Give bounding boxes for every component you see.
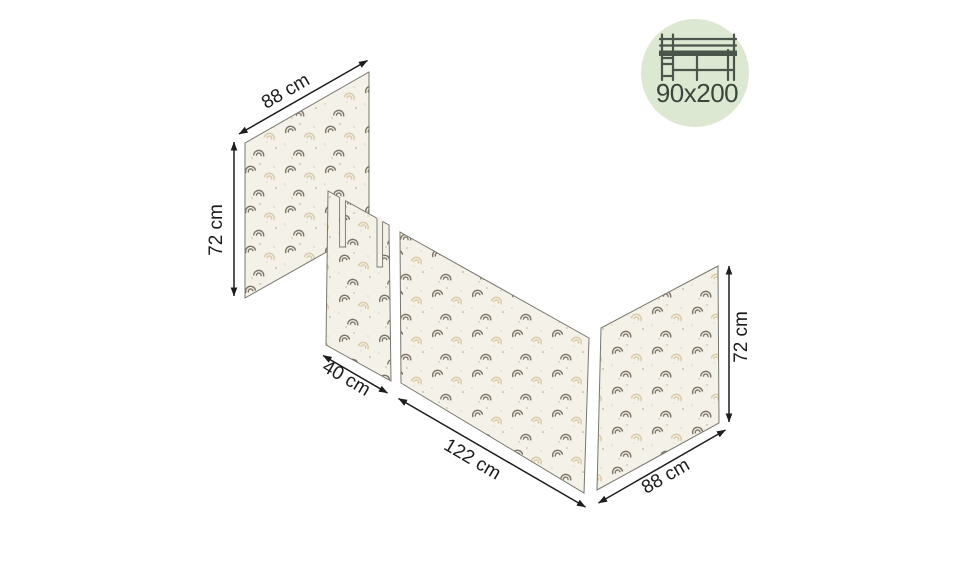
panel-front-left	[326, 191, 391, 381]
badge-size-label: 90x200	[656, 78, 738, 108]
product-dimension-diagram: 88 cm 72 cm 40 cm 122 cm 88 cm 72 cm 90x…	[0, 0, 960, 587]
diagram-canvas: 88 cm 72 cm 40 cm 122 cm 88 cm 72 cm 90x…	[0, 0, 960, 587]
dimension-label-left-height: 72 cm	[206, 204, 227, 256]
dimension-label-front-main-width: 122 cm	[440, 435, 504, 485]
badge-circle	[641, 19, 749, 127]
size-badge: 90x200	[641, 19, 749, 127]
panel-slit	[340, 196, 346, 247]
dimension-label-right-height: 72 cm	[731, 311, 752, 363]
panel-right-side	[597, 266, 719, 490]
panel-slit	[377, 216, 383, 267]
